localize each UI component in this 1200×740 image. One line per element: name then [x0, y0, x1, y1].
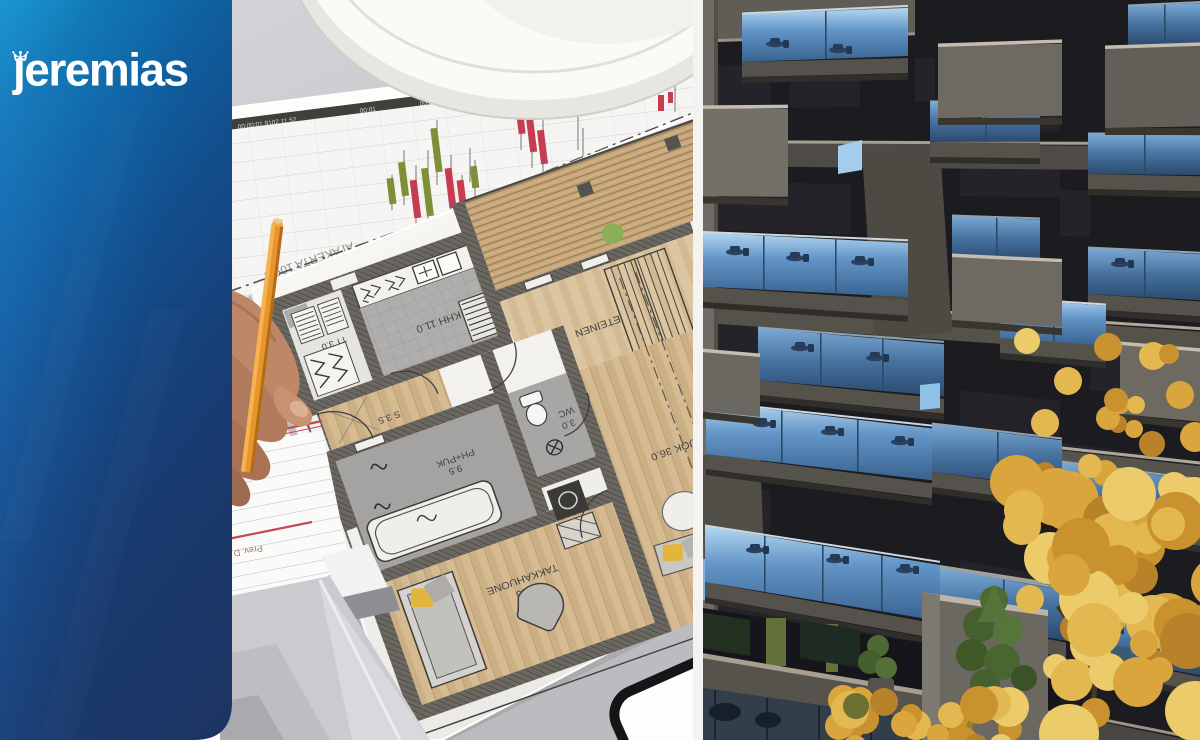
svg-text:ȷeremias: ȷeremias	[12, 44, 188, 96]
